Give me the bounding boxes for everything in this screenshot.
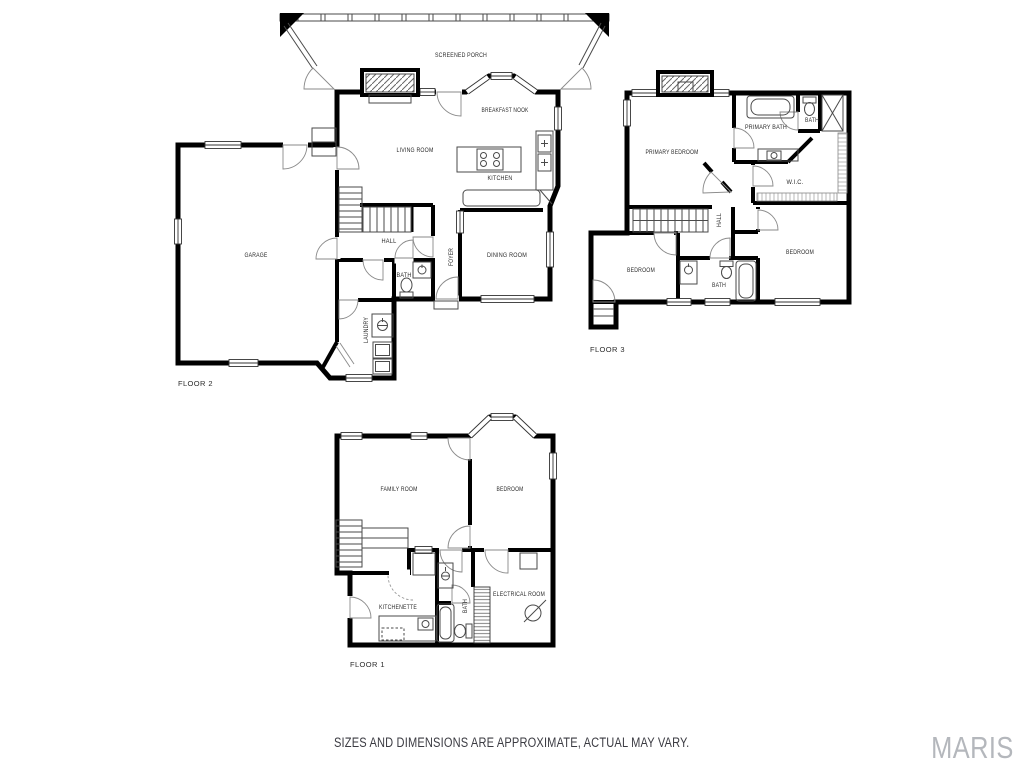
room-label-kitchen: KITCHEN	[488, 175, 513, 182]
toilet-icon	[803, 97, 816, 116]
room-label-primary-bath: PRIMARY BATH	[745, 124, 787, 131]
bathtub-icon	[736, 261, 756, 301]
utility-wall-hatch	[474, 587, 490, 643]
floor1-windows	[341, 414, 557, 480]
room-label-bedroom-floor1: BEDROOM	[497, 486, 524, 493]
fireplace-floor2	[362, 70, 418, 103]
porch-door-arcs	[304, 68, 591, 89]
room-label-foyer: FOYER	[448, 248, 455, 266]
shower-icon	[822, 95, 843, 131]
room-label-breakfast-nook: BREAKFAST NOOK	[482, 107, 529, 114]
room-label-electrical-room: ELECTRICAL ROOM	[493, 591, 545, 598]
pass-through-opening	[415, 547, 432, 554]
floor2-plan: SCREENED PORCH BREAKFAST NOOK LIVING ROO…	[175, 13, 610, 388]
floor1-label: FLOOR 1	[350, 660, 385, 669]
floor1-stairs	[336, 520, 408, 567]
floor2-stairs	[339, 187, 411, 232]
floor3-stairs	[633, 209, 708, 232]
room-label-bedroom-left: BEDROOM	[627, 267, 655, 274]
room-label-bath-lower-floor3: BATH	[712, 282, 726, 289]
floor3-exterior-walls	[591, 93, 849, 327]
sink-icon	[418, 618, 433, 630]
bump-closet-shelves	[593, 309, 614, 316]
toilet-icon	[455, 624, 473, 638]
sink-icon	[413, 262, 431, 278]
fireplace-floor3	[658, 72, 712, 95]
floor2-door-openings	[283, 89, 464, 304]
room-label-kitchenette: KITCHENETTE	[379, 604, 417, 611]
room-label-bath-floor2: BATH	[397, 272, 412, 279]
kitchen-fixtures	[457, 131, 553, 206]
room-label-hall-floor3: HALL	[716, 213, 723, 227]
disclaimer-text: SIZES AND DIMENSIONS ARE APPROXIMATE, AC…	[0, 734, 1024, 752]
electrical-room-fixtures	[520, 553, 546, 622]
electrical-meter-icon	[524, 600, 546, 622]
room-label-bath-upper-floor3: BATH	[805, 117, 819, 124]
floor2-label: FLOOR 2	[178, 379, 213, 388]
dishwasher-icon	[382, 628, 404, 640]
room-label-laundry: LAUNDRY	[363, 317, 370, 343]
room-label-bedroom-right: BEDROOM	[786, 249, 814, 256]
floorplan-drawing: SCREENED PORCH BREAKFAST NOOK LIVING ROO…	[0, 0, 1024, 768]
floorplan-page: SCREENED PORCH BREAKFAST NOOK LIVING ROO…	[0, 0, 1024, 768]
room-label-primary-bedroom: PRIMARY BEDROOM	[646, 149, 699, 156]
room-label-screened-porch: SCREENED PORCH	[435, 52, 487, 59]
bath-fixtures-floor2	[400, 262, 431, 298]
screened-porch-structure	[280, 13, 609, 89]
laundry-fixtures	[372, 314, 393, 374]
stove-icon	[477, 149, 503, 170]
room-label-wic: W.I.C.	[787, 179, 804, 186]
electrical-panel-icon	[520, 553, 537, 569]
room-label-bath-floor1: BATH	[462, 599, 469, 613]
floor3-label: FLOOR 3	[590, 345, 625, 354]
dining-cased-opening	[457, 211, 464, 233]
bathtub-icon	[747, 96, 794, 118]
toilet-icon	[400, 278, 413, 298]
bathtub-icon	[437, 604, 454, 642]
floor1-plan: FAMILY ROOM BEDROOM KITCHENETTE BATH ELE…	[336, 414, 557, 670]
toilet-icon	[720, 261, 733, 279]
porch-side-screens	[284, 23, 605, 69]
porch-screen-ticks	[294, 14, 568, 21]
floor3-plan: PRIMARY BEDROOM PRIMARY BATH BATH W.I.C.…	[590, 72, 849, 354]
maris-watermark: MARIS	[913, 730, 1014, 766]
wic-shelving	[757, 133, 847, 201]
room-label-family-room: FAMILY ROOM	[381, 486, 418, 493]
room-label-dining-room: DINING ROOM	[487, 252, 527, 259]
room-label-garage: GARAGE	[245, 252, 268, 259]
room-label-living-room: LIVING ROOM	[397, 147, 434, 154]
floor3-lower-bath-fixtures	[680, 261, 756, 301]
room-label-hall-floor2: HALL	[382, 238, 397, 245]
